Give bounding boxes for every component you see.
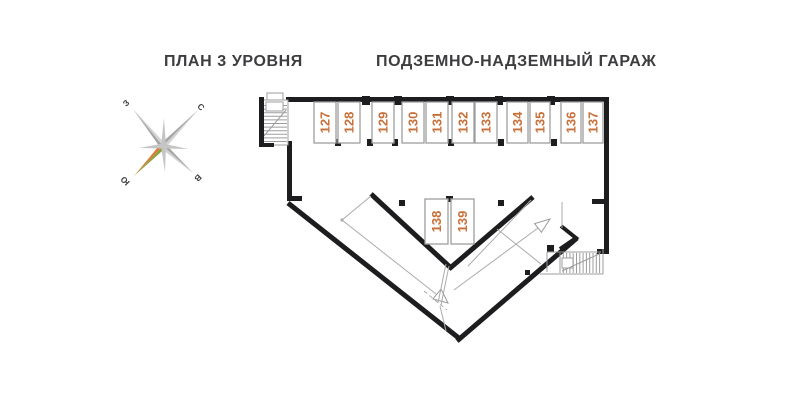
stall-number: 131 bbox=[430, 112, 445, 134]
ramp-edge-line-1 bbox=[497, 229, 541, 264]
wall-right-tick bbox=[592, 199, 604, 204]
stall-number: 133 bbox=[479, 112, 494, 134]
stairwell-roof-bump bbox=[267, 93, 283, 100]
stall-number: 138 bbox=[429, 211, 444, 233]
stairwell-top-left bbox=[259, 93, 288, 147]
stall-number: 130 bbox=[406, 112, 421, 134]
compass-needle-w bbox=[139, 144, 163, 149]
compass-letter-west: З bbox=[121, 98, 132, 109]
stair-landing bbox=[266, 102, 283, 111]
wall-left-cap bbox=[287, 196, 302, 201]
compass-needle-nw bbox=[133, 109, 166, 148]
compass-needle-s bbox=[161, 146, 166, 172]
parking-stall: 129 bbox=[372, 102, 394, 143]
compass-needle-n bbox=[161, 118, 166, 146]
compass-needle-ne bbox=[161, 110, 198, 148]
wall-left bbox=[287, 141, 292, 198]
compass-letter-east: В bbox=[192, 172, 203, 183]
parking-stall: 132 bbox=[452, 102, 474, 143]
stairwell-wall-left bbox=[259, 97, 264, 147]
stall-number: 127 bbox=[318, 112, 333, 134]
wall-right bbox=[604, 97, 609, 250]
wall-stair-corner-chevron bbox=[560, 226, 576, 249]
stall-number: 135 bbox=[533, 112, 548, 134]
stall-number: 136 bbox=[564, 112, 579, 134]
floor-plan-drawing: З С Ю В bbox=[0, 0, 800, 400]
parking-stall: 128 bbox=[338, 102, 360, 143]
stall-number: 128 bbox=[342, 112, 357, 134]
stall-number: 134 bbox=[510, 111, 525, 133]
floor-plan-page: ПЛАН 3 УРОВНЯ ПОДЗЕМНО-НАДЗЕМНЫЙ ГАРАЖ bbox=[0, 0, 800, 400]
stairwell-wall-bottom bbox=[259, 143, 274, 147]
parking-stall: 138 bbox=[425, 199, 448, 244]
parking-stall: 134 bbox=[507, 102, 528, 143]
parking-stall: 130 bbox=[402, 102, 424, 143]
stall-number: 132 bbox=[456, 112, 471, 134]
parking-stalls: 127128129130131132133134135136137138139 bbox=[314, 102, 603, 244]
parking-stall: 131 bbox=[426, 102, 448, 143]
parking-stall: 135 bbox=[530, 102, 550, 143]
compass-needle-south-colored bbox=[134, 144, 165, 176]
parking-stall: 133 bbox=[475, 102, 497, 143]
compass-rose: З С Ю В bbox=[118, 98, 207, 188]
parking-stall: 139 bbox=[451, 199, 474, 244]
ramp-up-arrow-icon bbox=[535, 219, 550, 232]
parking-stall: 137 bbox=[583, 102, 603, 143]
ramp-path-node bbox=[340, 218, 343, 221]
parking-stall: 136 bbox=[561, 102, 581, 143]
wall-ramp-outer-right bbox=[457, 238, 577, 341]
stall-number: 129 bbox=[376, 112, 391, 134]
stall-number: 137 bbox=[586, 112, 601, 134]
stall-number: 139 bbox=[455, 211, 470, 233]
parking-stall: 127 bbox=[314, 102, 336, 143]
compass-letter-south: Ю bbox=[118, 174, 131, 187]
